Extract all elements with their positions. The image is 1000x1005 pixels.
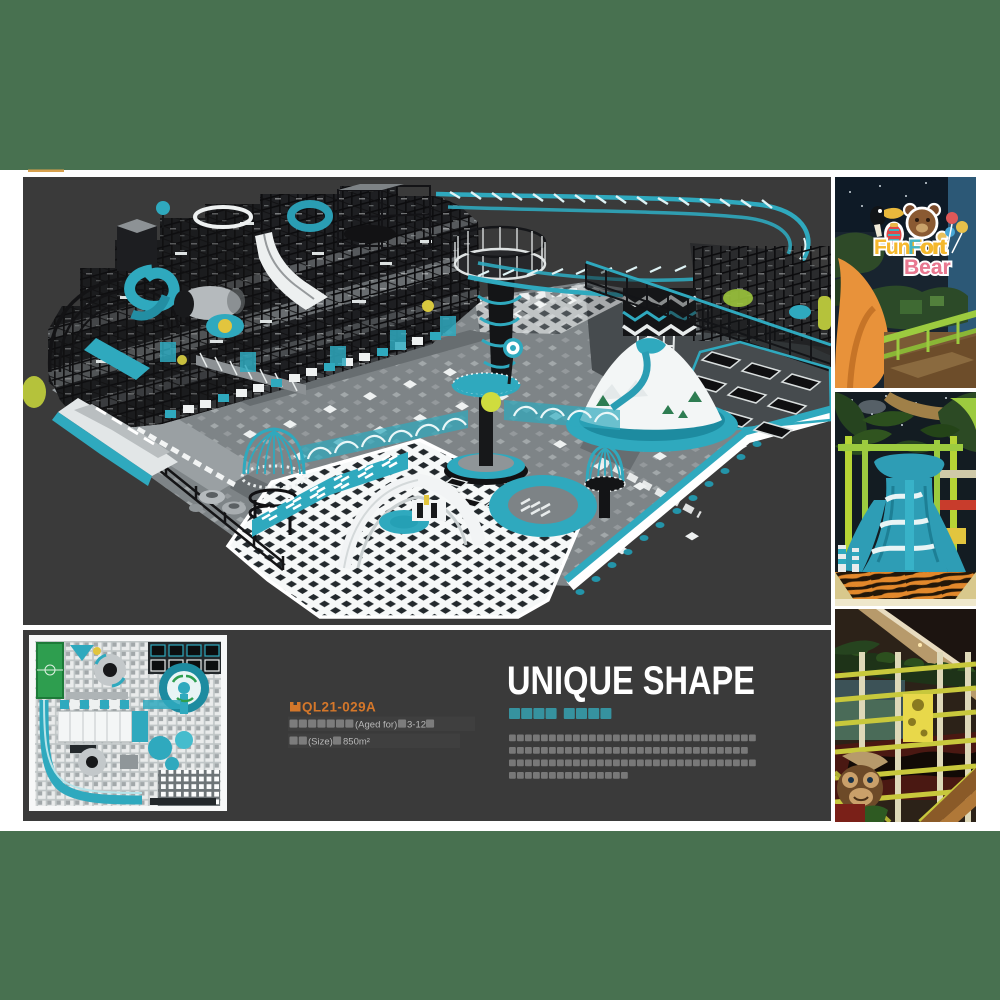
- svg-text:(Aged for): (Aged for): [355, 720, 397, 731]
- svg-text:UNIQUE SHAPE: UNIQUE SHAPE: [507, 659, 755, 703]
- svg-text:Bear: Bear: [904, 256, 951, 279]
- svg-text:3-12: 3-12: [407, 720, 426, 731]
- svg-text:(Size): (Size): [308, 737, 333, 748]
- svg-text:QL21-029A: QL21-029A: [302, 700, 376, 715]
- svg-text:850m²: 850m²: [343, 737, 370, 748]
